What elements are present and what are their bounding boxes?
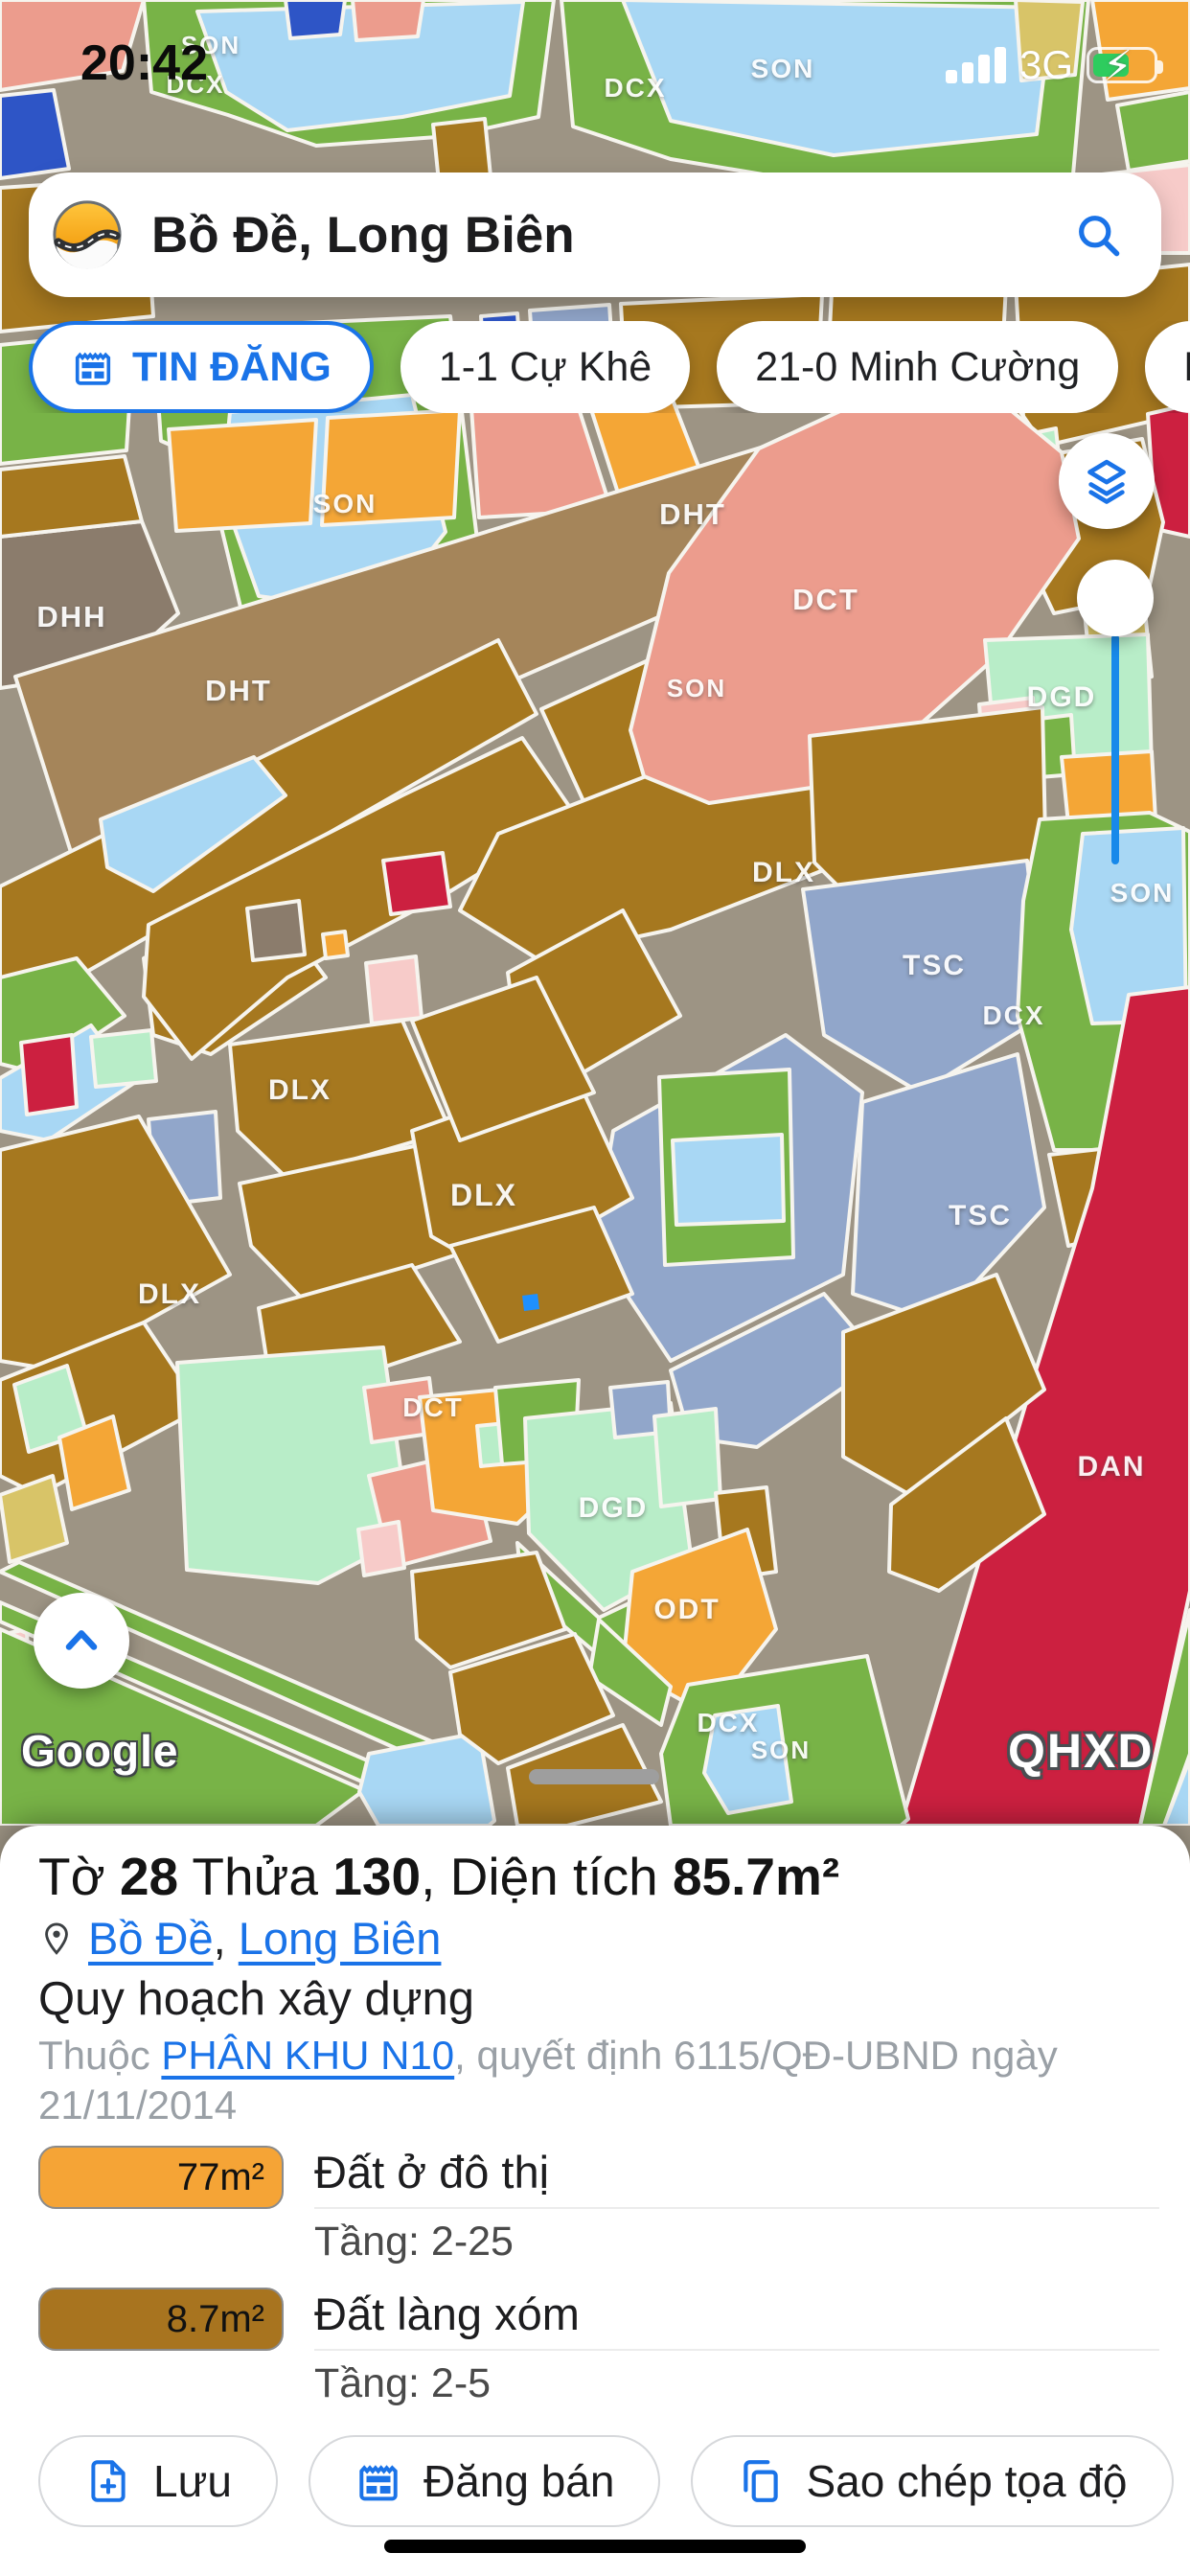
action-button-1[interactable]: Lưu (38, 2435, 278, 2527)
land-type-name: Đất làng xóm (314, 2288, 1159, 2341)
zone-label-dlx: DLX (752, 857, 815, 888)
zone-parcel-mnt[interactable] (91, 1030, 156, 1087)
zone-parcel-pnk[interactable] (358, 1522, 404, 1575)
zone-label-son: SON (667, 674, 726, 702)
map-scale-bar (529, 1769, 659, 1784)
zone-parcel-dkb[interactable] (0, 90, 69, 178)
plan-zone-link[interactable]: PHÂN KHU N10 (161, 2033, 454, 2078)
location-separator: , (214, 1913, 239, 1964)
zone-parcel-khk[interactable] (0, 1476, 67, 1562)
zone-label-dan: DAN (1078, 1451, 1146, 1483)
battery-charging-icon: ⚡ (1087, 47, 1157, 83)
google-attribution: Google (21, 1725, 178, 1777)
action-button-label: Lưu (153, 2455, 232, 2507)
chip-label: TIN ĐĂNG (132, 344, 332, 391)
search-icon[interactable] (1073, 210, 1123, 260)
collapse-panel-button[interactable] (34, 1593, 129, 1689)
parcel-title: Tờ 28 Thửa 130, Diện tích 85.7m² (38, 1849, 1159, 1904)
filter-chip-1[interactable]: TIN ĐĂNG (29, 321, 374, 413)
zone-label-dht: DHT (205, 674, 272, 707)
parcel-info-sheet: Tờ 28 Thửa 130, Diện tích 85.7m² Bồ Đề, … (0, 1826, 1190, 2576)
zoning-legend: 77m²Đất ở đô thịTầng: 2-258.7m²Đất làng … (38, 2146, 1159, 2406)
zone-parcel-wtr[interactable] (673, 1135, 784, 1225)
chevron-up-icon (57, 1616, 106, 1666)
zone-label-dlx: DLX (268, 1074, 332, 1106)
selected-parcel-marker[interactable] (522, 1294, 539, 1311)
filter-chip-2[interactable]: 1-1 Cự Khê (400, 321, 690, 413)
legend-area-pill: 8.7m² (38, 2288, 284, 2351)
app-logo-icon (50, 197, 125, 272)
chip-label: 21-0 Minh Cường (755, 344, 1080, 391)
search-bar[interactable]: Bồ Đề, Long Biên (29, 172, 1161, 297)
file-plus-icon (84, 2457, 132, 2505)
map-layers-button[interactable] (1059, 433, 1155, 529)
zone-label-dht: DHT (659, 497, 726, 531)
zone-parcel-mnt[interactable] (654, 1409, 721, 1506)
chip-label: DYT+D (1183, 344, 1190, 391)
zone-label-son: SON (751, 54, 815, 83)
filter-chip-3[interactable]: 21-0 Minh Cường (717, 321, 1118, 413)
copy-icon (737, 2457, 785, 2505)
status-icons: 3G ⚡ (946, 42, 1157, 88)
zone-label-tsc: TSC (903, 950, 966, 981)
zone-label-dcx: DCX (982, 1000, 1044, 1030)
divider (314, 2207, 1159, 2209)
app-screen: SONDCXDCXSONDHTDCTSONDHHDHTSONDGDDLXSONT… (0, 0, 1190, 2576)
status-time: 20:42 (80, 34, 208, 92)
zone-parcel-br[interactable] (0, 456, 142, 537)
zoom-slider-track[interactable] (1111, 634, 1119, 864)
zone-label-dhh: DHH (36, 600, 106, 633)
section-heading: Quy hoạch xây dựng (38, 1973, 1159, 2025)
action-button-3[interactable]: Sao chép tọa độ (691, 2435, 1173, 2527)
zone-label-dcx: DCX (697, 1708, 759, 1737)
zone-parcel-red[interactable] (21, 1035, 77, 1115)
zone-label-tsc: TSC (949, 1200, 1012, 1231)
zone-label-dlx: DLX (138, 1278, 201, 1310)
filter-chip-4[interactable]: DYT+D (1145, 321, 1190, 413)
legend-row-1: 77m²Đất ở đô thịTầng: 2-25 (38, 2146, 1159, 2265)
zone-label-dct: DCT (402, 1392, 464, 1422)
zone-label-son: SON (313, 489, 378, 518)
action-buttons-row: LưuĐăng bánSao chép tọa độ (38, 2435, 1190, 2527)
zone-label-son: SON (1110, 878, 1175, 908)
zone-label-son: SON (751, 1736, 811, 1764)
floors-range: Tầng: 2-5 (314, 2360, 1159, 2406)
zone-label-dlx: DLX (450, 1178, 517, 1212)
action-button-label: Đăng bán (423, 2455, 615, 2507)
lightning-bolt-icon: ⚡ (1103, 42, 1133, 91)
zone-parcel-or[interactable] (169, 420, 316, 531)
map-watermark: QHXD (1008, 1723, 1154, 1779)
zone-parcel-grn[interactable] (1117, 92, 1190, 171)
newspaper-icon (355, 2457, 402, 2505)
ward-link[interactable]: Bồ Đề (88, 1913, 214, 1964)
layers-icon (1080, 454, 1133, 508)
legend-row-2: 8.7m²Đất làng xómTầng: 2-5 (38, 2288, 1159, 2406)
signal-bars-icon (946, 47, 1006, 83)
district-link[interactable]: Long Biên (239, 1913, 442, 1964)
filter-chips-row: TIN ĐĂNG1-1 Cự Khê21-0 Minh CườngDYT+D (0, 321, 1190, 413)
zone-parcel-gry[interactable] (247, 901, 305, 960)
divider (314, 2349, 1159, 2351)
home-indicator[interactable] (384, 2540, 806, 2553)
zone-parcel-dkb[interactable] (286, 0, 345, 38)
land-type-name: Đất ở đô thị (314, 2146, 1159, 2199)
zone-label-dgd: DGD (579, 1492, 649, 1524)
action-button-label: Sao chép tọa độ (806, 2455, 1127, 2507)
network-type: 3G (1019, 42, 1073, 88)
zone-parcel-slt[interactable] (853, 1054, 1044, 1322)
search-input[interactable]: Bồ Đề, Long Biên (151, 206, 1073, 264)
zone-label-dct: DCT (792, 583, 859, 616)
location-row: Bồ Đề, Long Biên (38, 1914, 1159, 1964)
zone-label-dgd: DGD (1027, 681, 1097, 713)
zone-label-dcx: DCX (604, 73, 666, 103)
zone-parcel-pnk[interactable] (366, 956, 422, 1023)
legend-area-pill: 77m² (38, 2146, 284, 2209)
zone-label-odt: ODT (653, 1594, 720, 1625)
plan-description: Thuộc PHÂN KHU N10, quyết định 6115/QĐ-U… (38, 2031, 1140, 2130)
floors-range: Tầng: 2-25 (314, 2219, 1159, 2265)
zone-parcel-or[interactable] (323, 931, 348, 958)
zoom-slider-knob[interactable] (1077, 560, 1154, 636)
zone-parcel-red[interactable] (383, 853, 450, 914)
chip-label: 1-1 Cự Khê (439, 344, 652, 391)
map-pin-icon (38, 1917, 75, 1961)
action-button-2[interactable]: Đăng bán (309, 2435, 661, 2527)
newspaper-icon (71, 345, 115, 389)
zone-parcel-sal[interactable] (353, 0, 423, 40)
